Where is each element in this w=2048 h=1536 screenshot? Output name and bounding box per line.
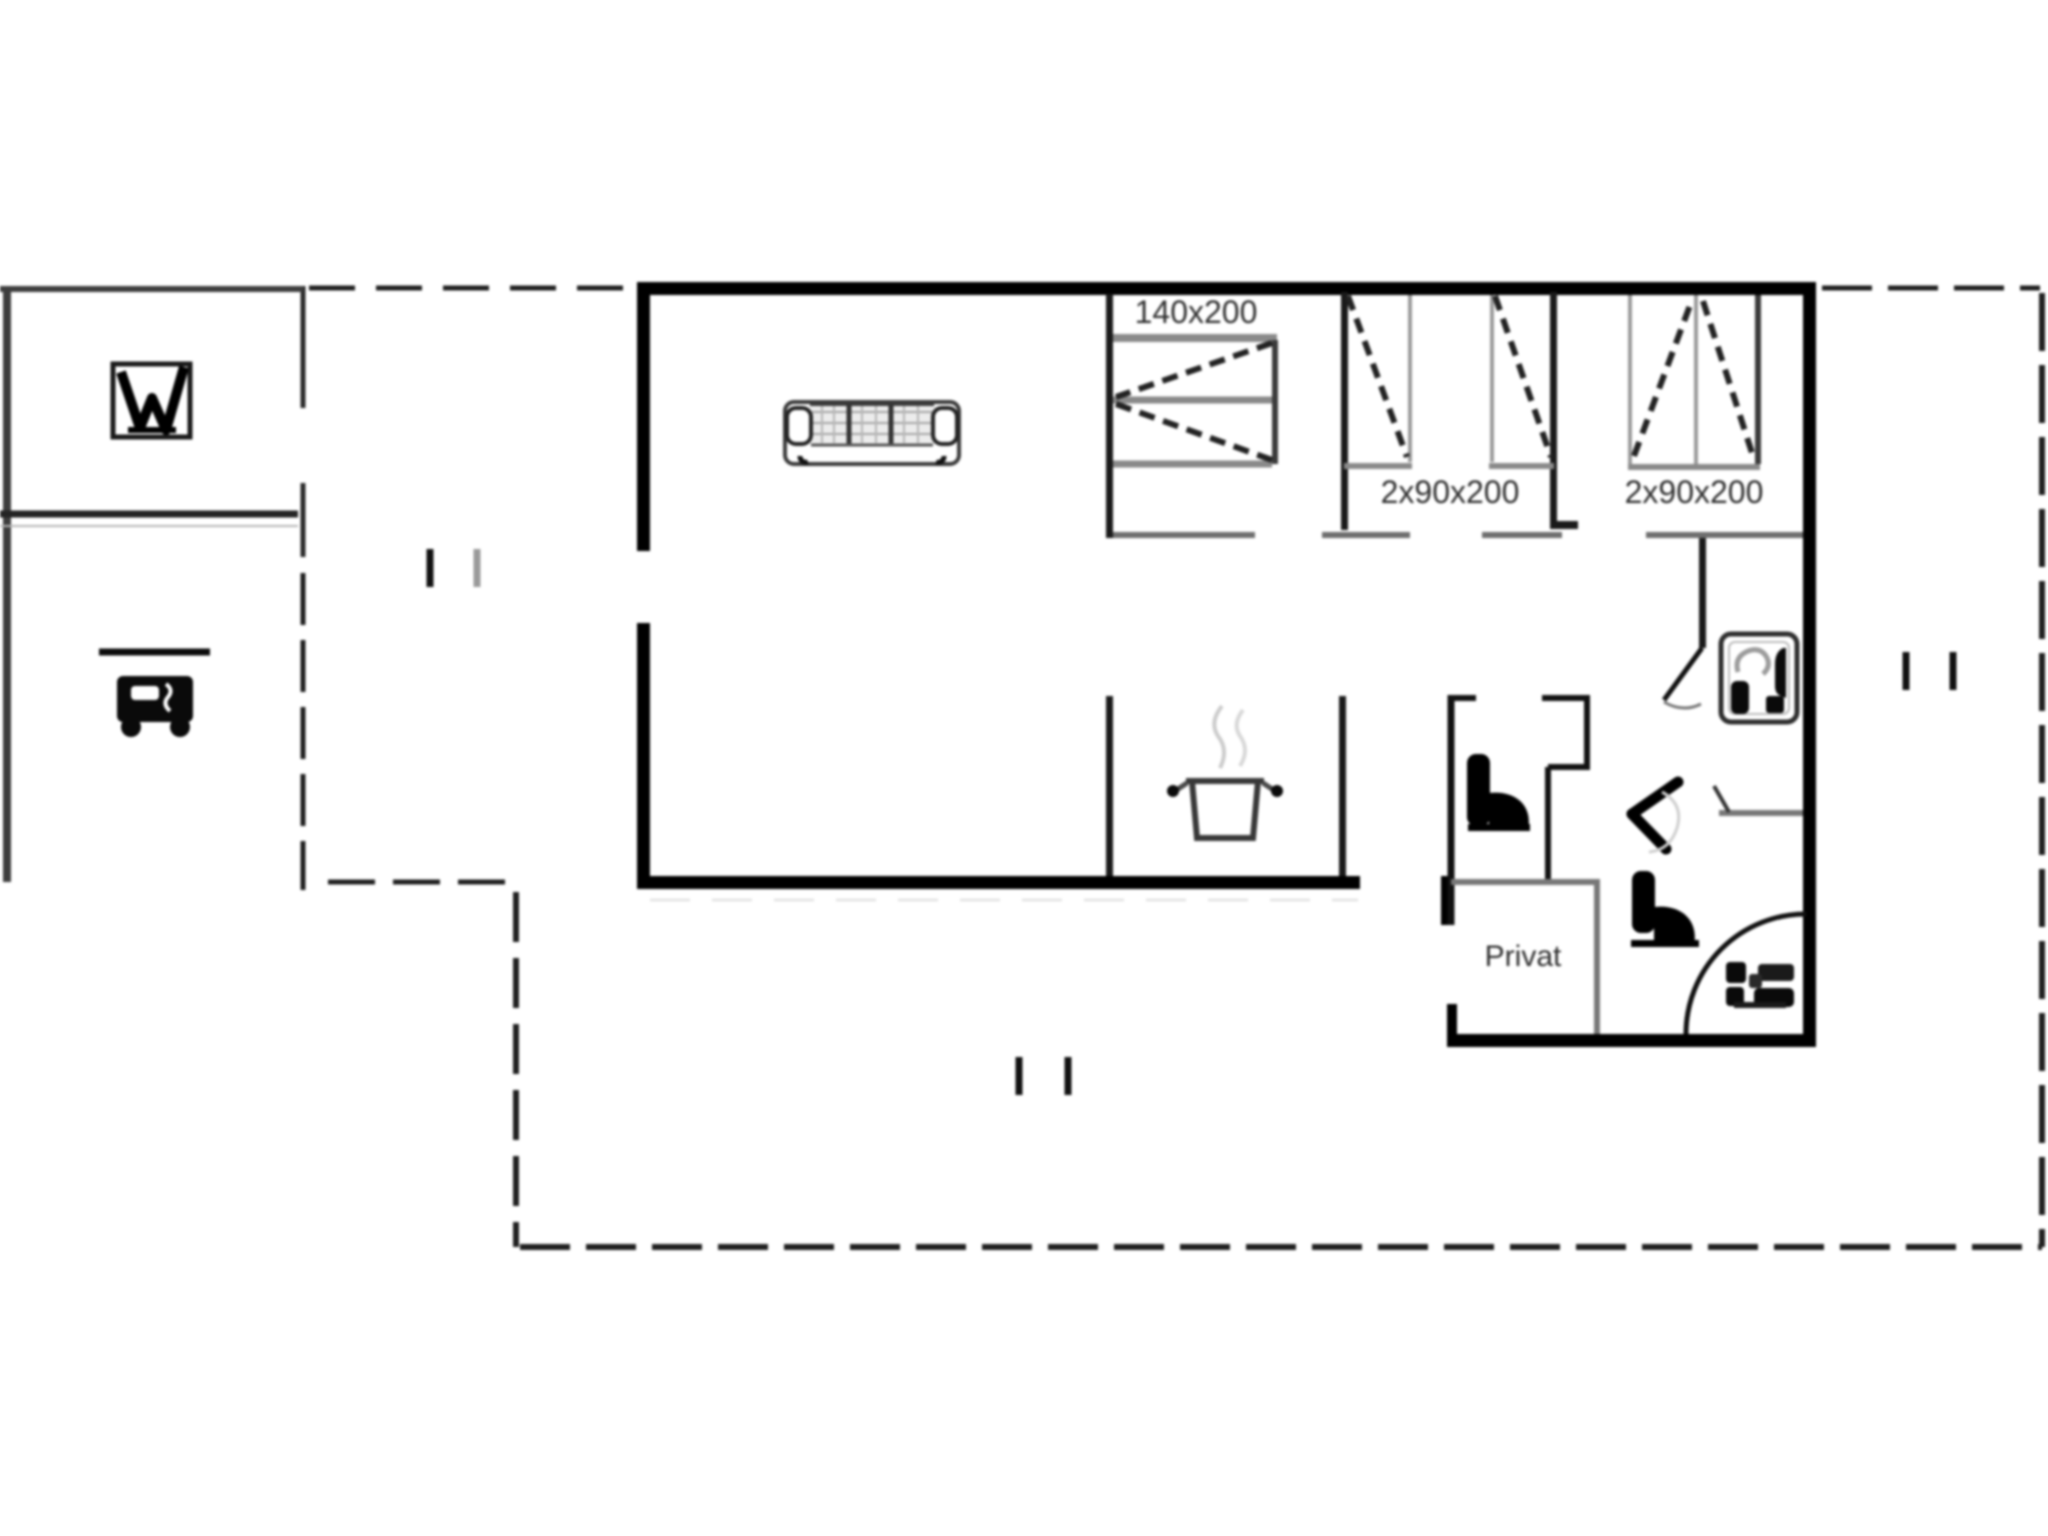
svg-text:2x90x200: 2x90x200: [1381, 474, 1520, 510]
svg-text:Privat: Privat: [1485, 940, 1562, 973]
svg-text:140x200: 140x200: [1135, 294, 1258, 330]
svg-text:2x90x200: 2x90x200: [1625, 474, 1764, 510]
